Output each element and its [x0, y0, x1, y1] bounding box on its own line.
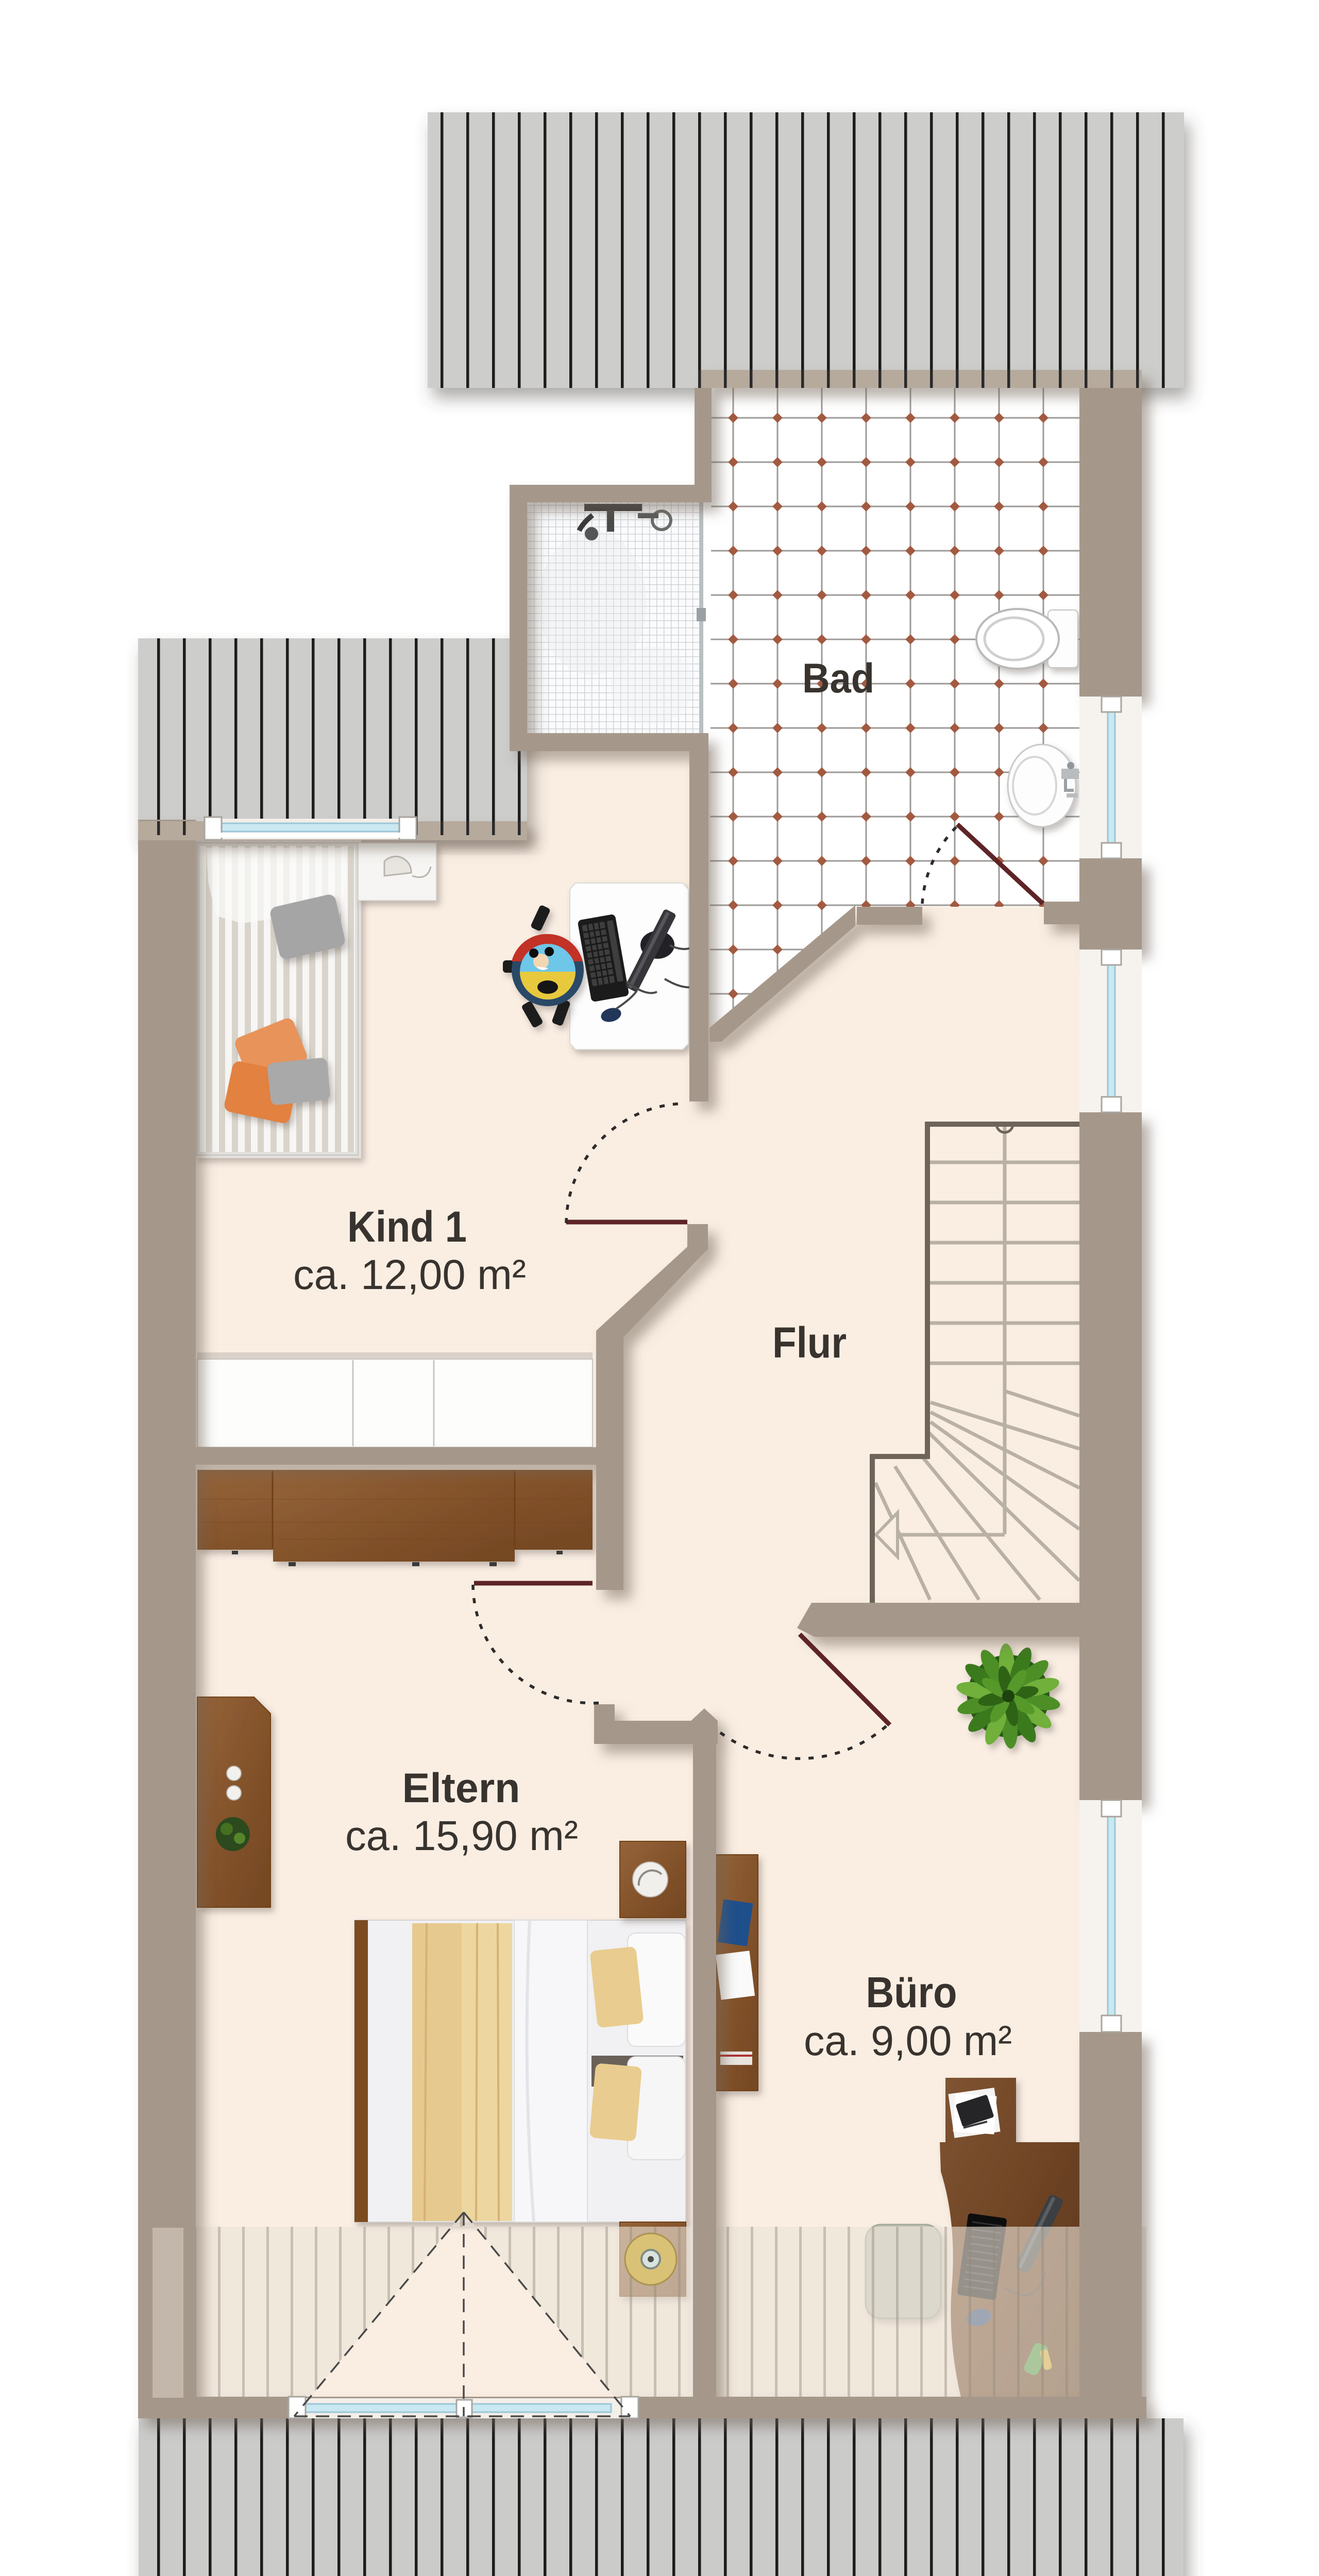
svg-text:ca. 9,00 m²: ca. 9,00 m²	[804, 2018, 1012, 2064]
svg-text:Flur: Flur	[772, 1318, 847, 1367]
svg-text:Kind 1: Kind 1	[347, 1202, 467, 1251]
svg-text:ca. 12,00 m²: ca. 12,00 m²	[293, 1251, 526, 1298]
svg-text:Büro: Büro	[866, 1968, 957, 2016]
svg-text:Bad: Bad	[802, 655, 874, 702]
svg-text:ca. 15,90 m²: ca. 15,90 m²	[345, 1812, 578, 1859]
svg-text:Eltern: Eltern	[402, 1765, 520, 1811]
